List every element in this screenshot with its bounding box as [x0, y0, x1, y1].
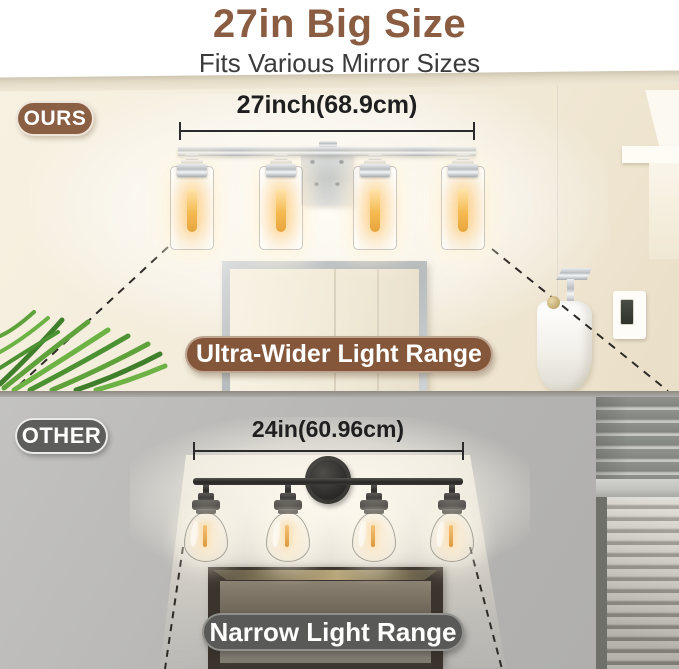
- bulb-filament: [203, 525, 207, 547]
- chrome-light-4: [441, 154, 485, 334]
- edison-bulb: [370, 188, 380, 232]
- header: 27in Big Size Fits Various Mirror Sizes: [0, 0, 679, 84]
- ours-dimension-line: [180, 130, 474, 132]
- socket-collar: [360, 164, 390, 177]
- mirror-bevel: [213, 570, 438, 580]
- ours-badge: OURS: [16, 101, 94, 136]
- towel-ring-knob: [547, 296, 560, 309]
- edison-bulb: [276, 188, 286, 232]
- screw: [339, 159, 344, 164]
- chrome-light-3: [353, 154, 397, 334]
- page-title: 27in Big Size: [0, 2, 679, 47]
- socket-collar: [177, 164, 207, 177]
- chrome-light-1: [170, 154, 214, 334]
- bronze-light-3: [350, 485, 398, 567]
- dimension-tick-right: [473, 122, 475, 140]
- product-comparison-infographic: 27in Big Size Fits Various Mirror Sizes: [0, 0, 679, 669]
- ours-dimension-label: 27inch(68.9cm): [180, 91, 474, 120]
- ours-feature-pill: Ultra-Wider Light Range: [185, 336, 493, 373]
- bulb-filament: [371, 525, 375, 547]
- section-divider: [0, 391, 679, 397]
- socket-collar: [448, 164, 478, 177]
- screw: [310, 159, 315, 164]
- wide-beam-dashed-line-right: [492, 249, 668, 391]
- narrow-beam-dashed-line-left: [165, 547, 183, 669]
- bulb-filament: [449, 525, 453, 547]
- bronze-fixture-bar: [193, 478, 463, 485]
- socket-collar: [266, 164, 296, 177]
- bronze-light-4: [428, 485, 476, 567]
- chrome-fixture-bar: [178, 147, 476, 156]
- other-badge: OTHER: [15, 418, 108, 454]
- ours-section: OURS 27inch(68.9cm) Ultra-Wider Light Ra…: [0, 84, 679, 391]
- other-section: OTHER 24in(60.96cm) Narrow Light Range: [0, 397, 679, 669]
- dimension-tick-left: [179, 122, 181, 140]
- other-feature-pill: Narrow Light Range: [202, 613, 464, 651]
- chrome-light-2: [259, 154, 303, 334]
- screw: [314, 181, 319, 186]
- dimension-tick-right: [462, 442, 464, 460]
- other-dimension-label: 24in(60.96cm): [190, 416, 466, 443]
- bulb-filament: [285, 525, 289, 547]
- screw: [335, 181, 340, 186]
- edison-bulb: [458, 188, 468, 232]
- dimension-tick-left: [193, 442, 195, 460]
- other-dimension-line: [194, 450, 464, 452]
- bronze-light-1: [182, 485, 230, 567]
- bronze-light-2: [264, 485, 312, 567]
- wide-beam-dashed-line-left: [15, 247, 168, 389]
- palm-leaves: [0, 312, 165, 390]
- edison-bulb: [187, 188, 197, 232]
